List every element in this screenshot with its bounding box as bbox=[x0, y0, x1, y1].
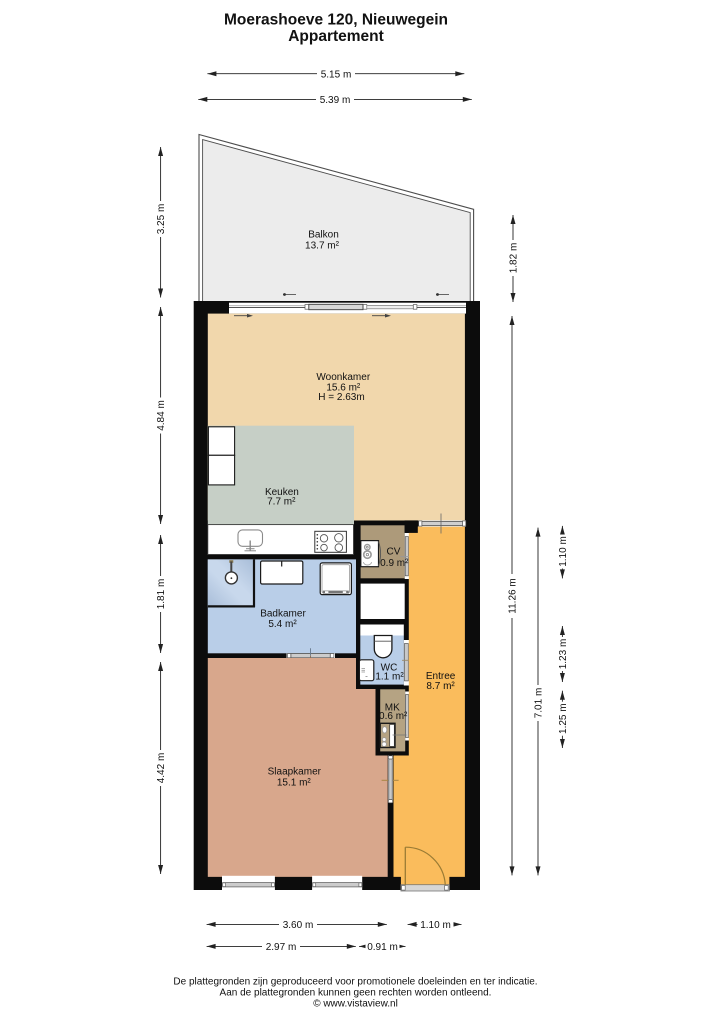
svg-text:Appartement: Appartement bbox=[288, 28, 384, 45]
svg-text:Slaapkamer: Slaapkamer bbox=[268, 766, 322, 777]
svg-text:3.25 m: 3.25 m bbox=[156, 204, 167, 235]
svg-text:4.84 m: 4.84 m bbox=[156, 400, 167, 431]
svg-text:3.60 m: 3.60 m bbox=[283, 920, 314, 931]
svg-text:1.1 m²: 1.1 m² bbox=[375, 672, 404, 683]
svg-text:7.7 m²: 7.7 m² bbox=[267, 497, 296, 508]
svg-text:Balkon: Balkon bbox=[308, 230, 339, 241]
svg-text:5.39 m: 5.39 m bbox=[320, 95, 351, 106]
svg-text:13.7 m²: 13.7 m² bbox=[305, 241, 340, 252]
svg-text:1.81 m: 1.81 m bbox=[156, 579, 167, 610]
svg-text:11.26 m: 11.26 m bbox=[508, 578, 519, 613]
svg-text:1.10 m: 1.10 m bbox=[420, 920, 451, 931]
svg-text:© www.vistaview.nl: © www.vistaview.nl bbox=[313, 999, 398, 1010]
svg-text:0.9 m²: 0.9 m² bbox=[380, 558, 409, 569]
svg-text:CV: CV bbox=[387, 547, 401, 558]
svg-text:1.25 m: 1.25 m bbox=[558, 703, 569, 734]
svg-text:De plattegronden zijn geproduc: De plattegronden zijn geproduceerd voor … bbox=[173, 977, 537, 988]
svg-text:H = 2.63m: H = 2.63m bbox=[318, 392, 364, 403]
svg-text:Moerashoeve 120, Nieuwegein: Moerashoeve 120, Nieuwegein bbox=[224, 11, 448, 28]
svg-text:1.23 m: 1.23 m bbox=[558, 639, 569, 670]
svg-text:4.42 m: 4.42 m bbox=[156, 753, 167, 784]
svg-text:5.4 m²: 5.4 m² bbox=[268, 619, 297, 630]
svg-text:15.1 m²: 15.1 m² bbox=[277, 778, 312, 789]
svg-text:Aan de plattegronden kunnen ge: Aan de plattegronden kunnen geen rechten… bbox=[220, 988, 492, 999]
svg-text:5.15 m: 5.15 m bbox=[321, 69, 352, 80]
svg-text:8.7 m²: 8.7 m² bbox=[426, 681, 455, 692]
svg-text:0.91 m: 0.91 m bbox=[367, 942, 398, 953]
svg-text:1.82 m: 1.82 m bbox=[509, 243, 520, 274]
svg-text:2.97 m: 2.97 m bbox=[266, 942, 297, 953]
svg-text:1.10 m: 1.10 m bbox=[558, 536, 569, 567]
svg-text:0.6 m²: 0.6 m² bbox=[379, 711, 408, 722]
svg-text:7.01 m: 7.01 m bbox=[534, 688, 545, 719]
